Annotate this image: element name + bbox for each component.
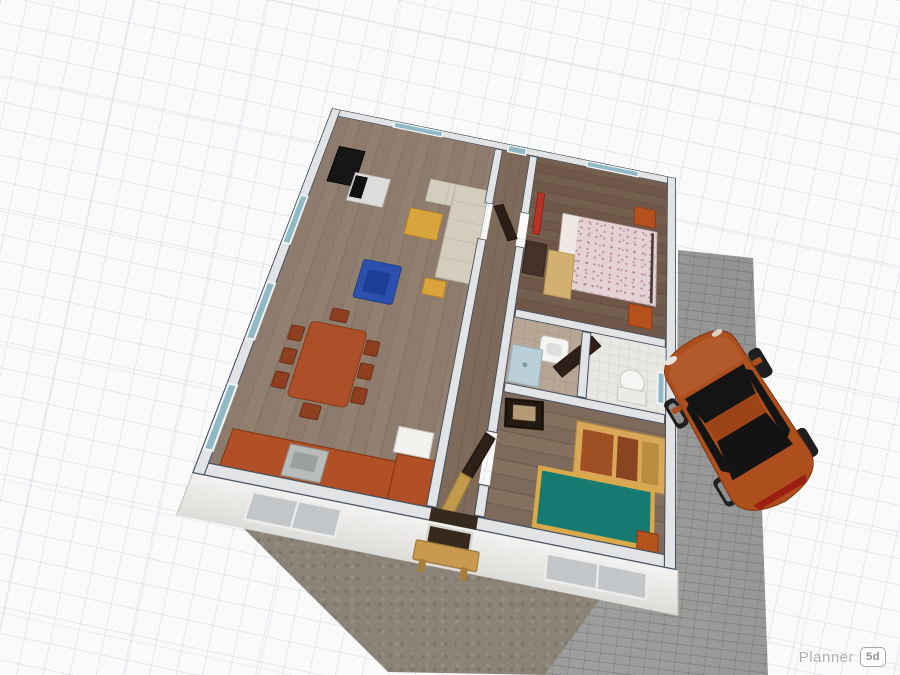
rug[interactable] — [543, 249, 575, 299]
shower-tray[interactable] — [507, 344, 543, 388]
planner5d-watermark: Planner 5d — [799, 647, 886, 667]
leaning-picture[interactable] — [504, 398, 544, 431]
watermark-5d-badge-icon: 5d — [860, 647, 886, 667]
watermark-brand-text: Planner — [799, 649, 854, 666]
wardrobe-door — [616, 436, 638, 482]
wardrobe-shelves — [641, 441, 658, 486]
dark-dresser[interactable] — [522, 240, 548, 277]
window-mullion — [290, 502, 300, 528]
picture-canvas — [513, 405, 536, 422]
armchair-seat — [362, 269, 391, 295]
shower-drain — [522, 362, 528, 368]
nightstand[interactable] — [628, 303, 653, 330]
3d-scene-viewport[interactable]: Planner 5d — [0, 0, 900, 675]
basin-bowl — [546, 342, 563, 357]
wardrobe-door — [580, 429, 614, 476]
window-mullion — [596, 565, 600, 589]
bed-headboard — [650, 233, 654, 304]
sink-basin — [290, 451, 319, 472]
house[interactable] — [192, 108, 676, 570]
